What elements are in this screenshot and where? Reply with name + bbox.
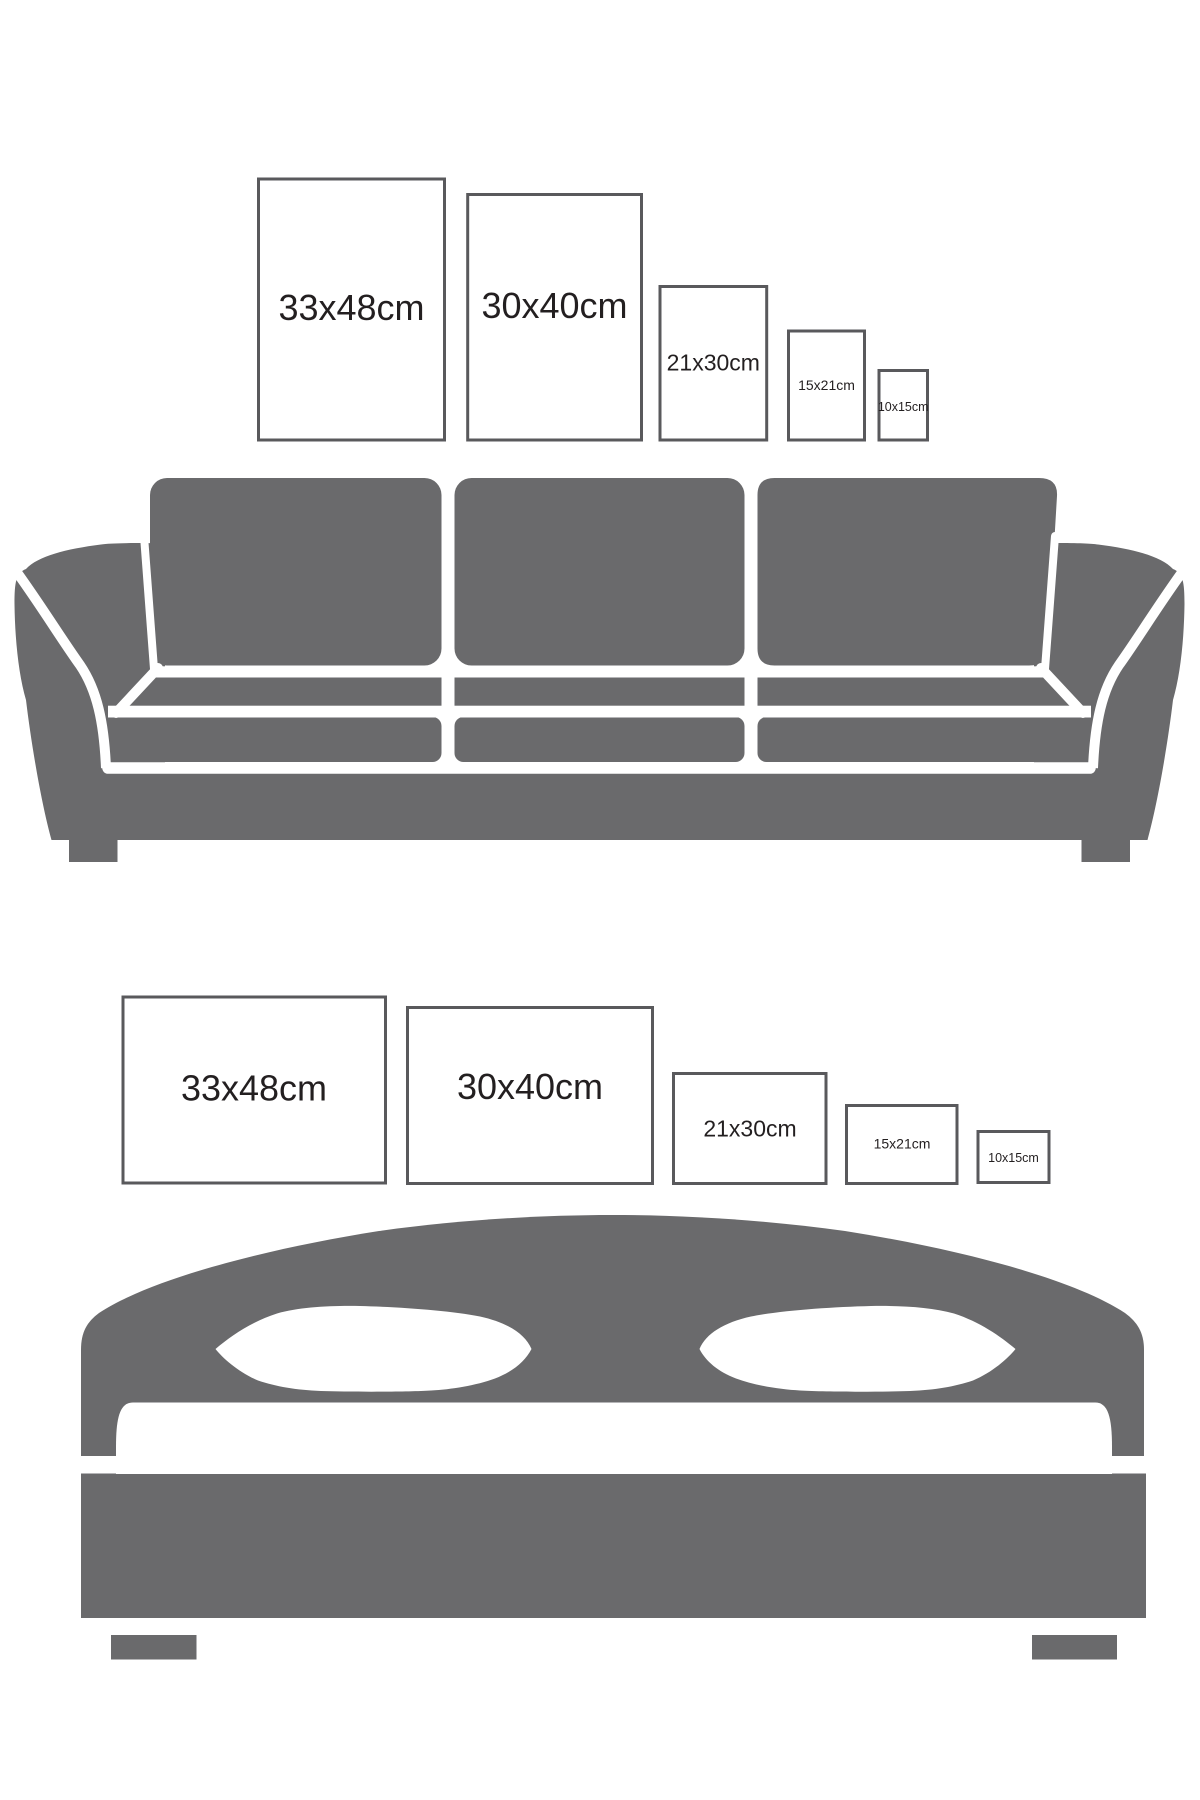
svg-text:10x15cm: 10x15cm — [988, 1151, 1039, 1165]
svg-text:33x48cm: 33x48cm — [278, 287, 424, 328]
svg-text:33x48cm: 33x48cm — [181, 1068, 327, 1109]
svg-text:10x15cm: 10x15cm — [878, 400, 929, 414]
svg-text:15x21cm: 15x21cm — [874, 1136, 931, 1152]
svg-text:21x30cm: 21x30cm — [703, 1115, 796, 1141]
svg-text:30x40cm: 30x40cm — [457, 1066, 603, 1107]
svg-text:21x30cm: 21x30cm — [667, 350, 760, 376]
svg-text:15x21cm: 15x21cm — [798, 377, 855, 393]
svg-text:30x40cm: 30x40cm — [481, 285, 627, 326]
